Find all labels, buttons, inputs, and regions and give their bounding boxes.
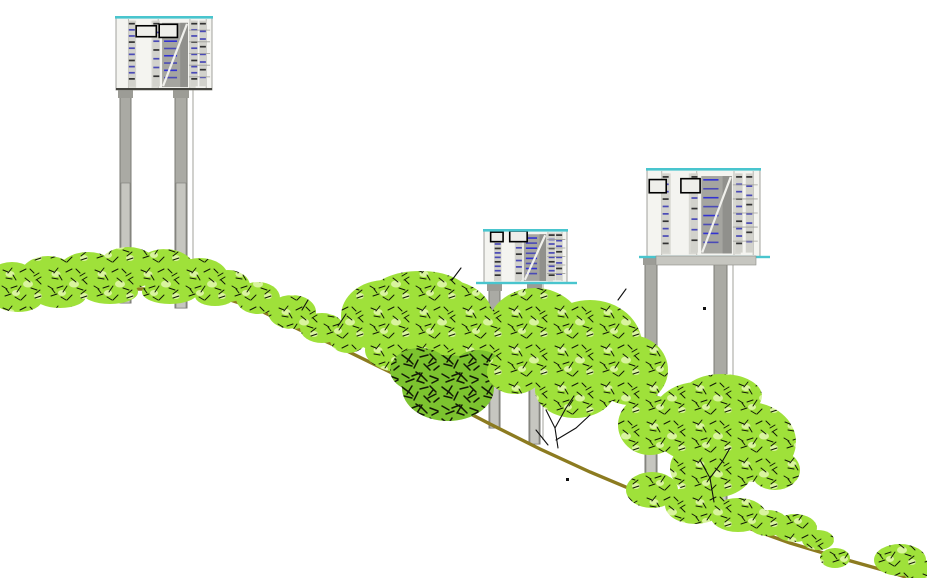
dimension-tick — [129, 72, 135, 74]
dimension-tick — [191, 47, 197, 49]
vegetation-blob — [195, 286, 235, 306]
facade-window — [649, 180, 666, 193]
dimension-tick — [663, 235, 669, 237]
dimension-tick — [191, 66, 197, 68]
stair-step-mark — [164, 48, 177, 50]
dimension-tick — [549, 270, 555, 272]
dimension-tick — [549, 243, 555, 245]
stair-step-mark — [526, 247, 537, 249]
dimension-tick — [129, 60, 135, 62]
dimension-tick — [191, 60, 197, 62]
vegetation-blob — [535, 362, 615, 418]
dimension-tick — [129, 41, 135, 43]
dimension-tick — [663, 220, 669, 222]
dimension-tick — [153, 75, 159, 77]
dimension-tick — [200, 31, 206, 33]
dimension-tick — [191, 35, 197, 37]
facade-window — [681, 179, 700, 193]
dimension-tick — [495, 243, 501, 245]
facade-window — [491, 232, 503, 242]
stray-dot — [566, 478, 569, 481]
elevation-drawing — [0, 0, 927, 578]
dimension-tick — [516, 253, 522, 255]
dimension-tick — [200, 46, 206, 48]
facade-window — [159, 24, 177, 37]
dimension-tick — [691, 218, 697, 220]
base-line — [476, 282, 577, 284]
vegetation — [0, 247, 927, 578]
dimension-tick — [736, 220, 742, 222]
dimension-tick — [495, 252, 501, 254]
branch-stroke — [618, 289, 626, 300]
dimension-tick — [736, 191, 742, 193]
dimension-tick — [516, 266, 522, 268]
dimension-tick — [556, 251, 562, 253]
dimension-tick — [556, 240, 562, 242]
dimension-tick — [549, 252, 555, 254]
roof-line — [646, 168, 761, 171]
vegetation-blob — [34, 284, 86, 308]
dimension-tick — [746, 176, 752, 178]
stair-step-mark — [703, 188, 718, 190]
dimension-tick — [736, 235, 742, 237]
dimension-tick — [663, 176, 669, 178]
dimension-tick — [736, 176, 742, 178]
stair-step-mark — [703, 233, 718, 235]
stair-step-mark — [526, 242, 537, 244]
roof-line — [115, 16, 213, 19]
dimension-tick — [153, 40, 159, 42]
dimension-tick — [516, 272, 522, 274]
facade-window — [510, 231, 527, 242]
dimension-tick — [153, 49, 159, 51]
dimension-tick — [736, 243, 742, 245]
stray-dot — [703, 307, 706, 310]
dimension-tick — [129, 35, 135, 37]
dimension-tick — [736, 228, 742, 230]
dimension-tick — [736, 206, 742, 208]
dimension-tick — [129, 54, 135, 56]
dimension-tick — [556, 234, 562, 236]
dimension-tick — [191, 23, 197, 25]
branch-stroke — [452, 268, 461, 280]
vegetation-blob — [750, 450, 800, 490]
branch-stroke — [556, 415, 590, 440]
dimension-tick — [556, 262, 562, 264]
vegetation-blob — [142, 280, 198, 304]
dimension-tick — [495, 270, 501, 272]
dimension-tick — [691, 176, 697, 178]
dimension-tick — [746, 204, 752, 206]
dimension-tick — [549, 261, 555, 263]
dimension-tick — [200, 69, 206, 71]
foundation-slab — [656, 256, 756, 265]
vegetation-blob — [820, 548, 850, 568]
dimension-tick — [129, 23, 135, 25]
tree-dense-dark — [390, 348, 503, 421]
dimension-tick — [516, 260, 522, 262]
dimension-tick — [663, 213, 669, 215]
dimension-tick — [663, 206, 669, 208]
scene-svg — [0, 0, 927, 578]
dimension-tick — [691, 239, 697, 241]
dimension-tick — [153, 58, 159, 60]
stair-step-mark — [703, 224, 718, 226]
stair-step-mark — [703, 179, 718, 181]
dimension-tick — [129, 78, 135, 80]
pillar-cap — [487, 283, 502, 291]
dimension-tick — [663, 228, 669, 230]
stair-step-mark — [703, 206, 718, 208]
vegetation-blob — [487, 350, 543, 394]
dimension-tick — [549, 274, 555, 276]
pillar-cap — [118, 90, 133, 98]
dimension-tick — [153, 67, 159, 69]
facade-window — [136, 26, 156, 37]
dimension-tick — [191, 78, 197, 80]
dimension-tick — [549, 265, 555, 267]
dimension-tick — [200, 38, 206, 40]
stair-step-mark — [526, 252, 537, 254]
base-line — [116, 88, 212, 90]
dimension-tick — [129, 66, 135, 68]
stair-step-mark — [703, 197, 718, 199]
branch-stroke — [546, 410, 558, 448]
stair-step-mark — [164, 70, 177, 72]
dimension-tick — [746, 231, 752, 233]
dimension-tick — [191, 72, 197, 74]
dimension-tick — [746, 222, 752, 224]
pillar-cap — [173, 90, 189, 98]
dimension-tick — [556, 245, 562, 247]
dimension-tick — [746, 185, 752, 187]
dimension-tick — [691, 208, 697, 210]
vegetation-blob — [802, 530, 834, 550]
dimension-tick — [129, 29, 135, 31]
dimension-tick — [663, 243, 669, 245]
roof-line — [483, 229, 568, 232]
dimension-tick — [495, 274, 501, 276]
stair-step-mark — [164, 40, 177, 42]
dimension-tick — [495, 261, 501, 263]
dimension-tick — [516, 247, 522, 249]
dimension-tick — [495, 265, 501, 267]
dimension-tick — [691, 229, 697, 231]
dimension-tick — [556, 268, 562, 270]
dimension-tick — [129, 47, 135, 49]
dimension-tick — [495, 257, 501, 259]
vegetation-blob — [82, 280, 138, 304]
dimension-tick — [746, 195, 752, 197]
dimension-tick — [495, 248, 501, 250]
dimension-tick — [200, 61, 206, 63]
dense-tree-blob — [390, 348, 450, 392]
dimension-tick — [549, 234, 555, 236]
dimension-tick — [691, 197, 697, 199]
dimension-tick — [663, 198, 669, 200]
dimension-tick — [200, 23, 206, 25]
vegetation-blob — [682, 374, 762, 418]
